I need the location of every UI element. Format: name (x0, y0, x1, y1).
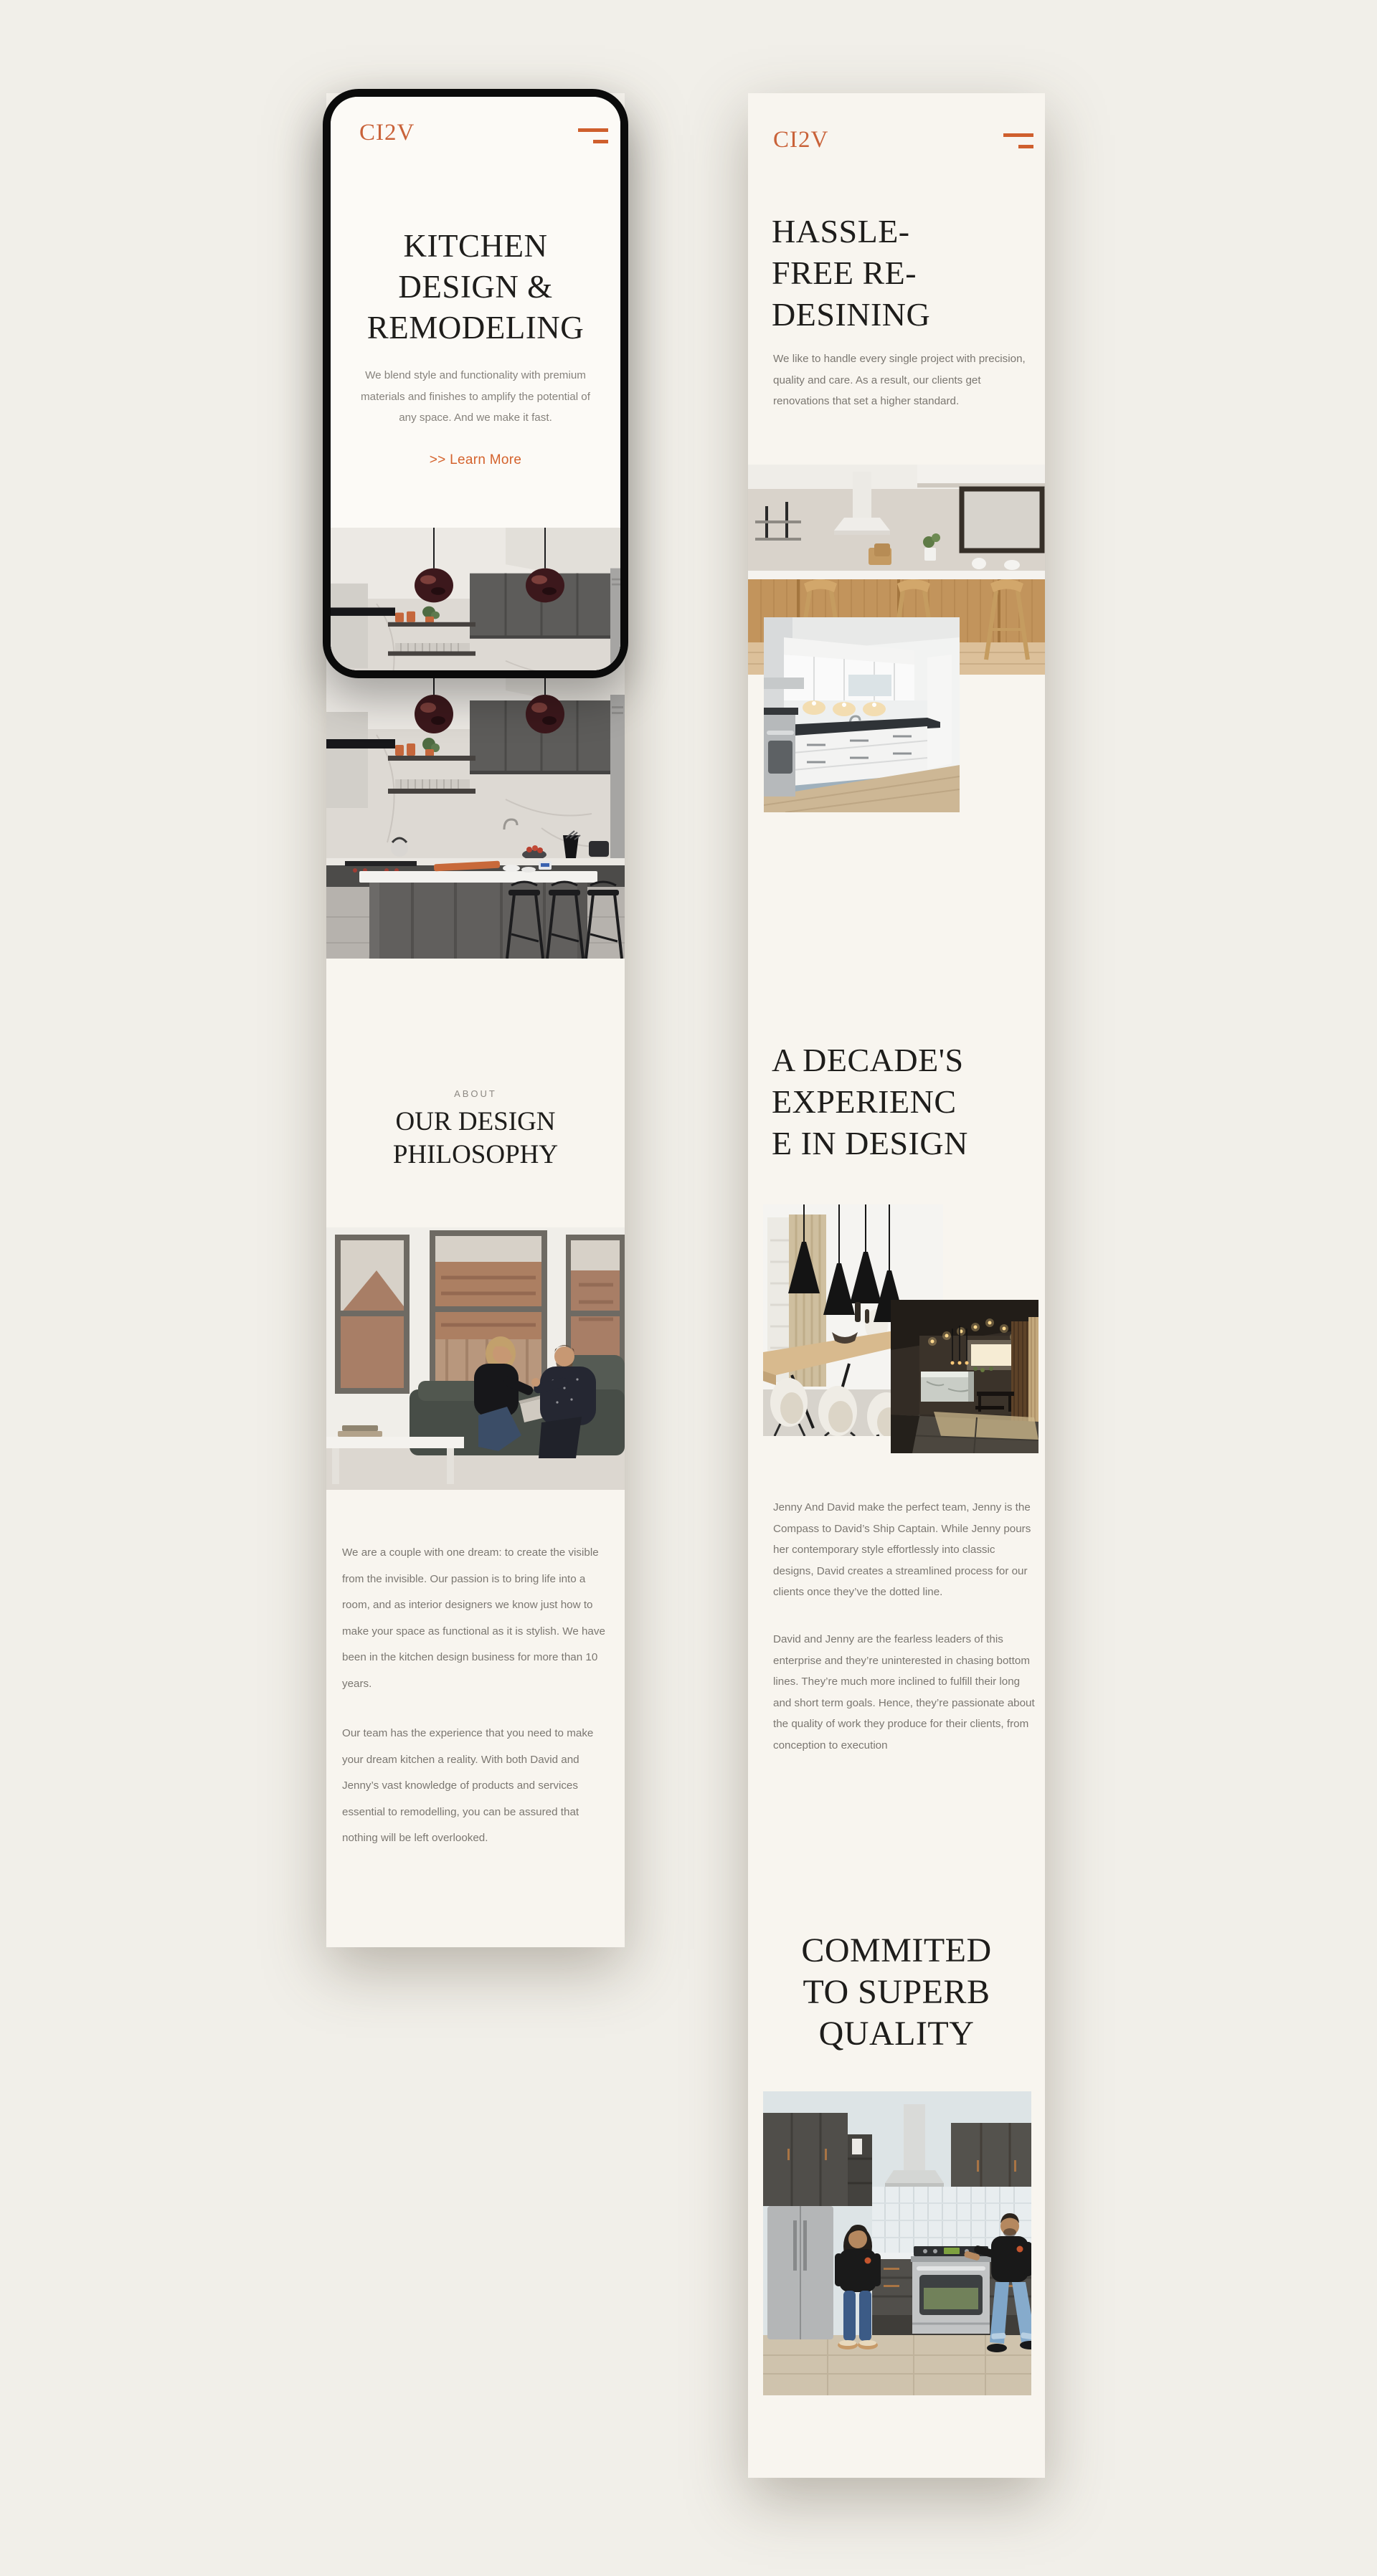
about-paragraph-2: Our team has the experience that you nee… (342, 1721, 606, 1852)
about-heading-line: PHILOSOPHY (326, 1139, 625, 1171)
section-heading-experience: A DECADE'S EXPERIENC E IN DESIGN (772, 1040, 968, 1164)
hero-heading: KITCHEN DESIGN & REMODELING (331, 226, 620, 348)
heading-line: QUALITY (748, 2013, 1045, 2055)
menu-line-bottom (593, 140, 608, 143)
hero-heading-line: DESIGN & (331, 267, 620, 308)
heading-line: DESINING (772, 294, 930, 336)
menu-icon[interactable] (1003, 133, 1033, 148)
learn-more-link[interactable]: >> Learn More (331, 452, 620, 468)
hero-heading-line: KITCHEN (331, 226, 620, 267)
dark-kitchen-image (326, 649, 625, 959)
hero-kitchen-image (331, 528, 620, 670)
hero-paragraph: We blend style and functionality with pr… (354, 365, 597, 429)
about-label: ABOUT (326, 1088, 625, 1099)
white-kitchen-image (764, 617, 960, 812)
couple-on-couch-image (326, 1227, 625, 1490)
redesign-paragraph: We like to handle every single project w… (773, 348, 1037, 412)
heading-line: HASSLE- (772, 211, 930, 252)
heading-line: E IN DESIGN (772, 1123, 968, 1164)
phone-screen: CI2V KITCHEN DESIGN & REMODELING We blen… (331, 97, 620, 670)
owners-in-kitchen-image (763, 2091, 1031, 2395)
about-paragraph-1: We are a couple with one dream: to creat… (342, 1540, 606, 1697)
about-heading-line: OUR DESIGN (326, 1106, 625, 1139)
hero-heading-line: REMODELING (331, 308, 620, 348)
menu-line-top (1003, 133, 1033, 137)
section-heading-quality: COMMITED TO SUPERB QUALITY (748, 1930, 1045, 2055)
design-canvas: ABOUT OUR DESIGN PHILOSOPHY (0, 0, 1377, 2576)
menu-icon[interactable] (578, 128, 608, 143)
heading-line: FREE RE- (772, 252, 930, 294)
heading-line: TO SUPERB (748, 1972, 1045, 2013)
brand-logo[interactable]: CI2V (359, 120, 415, 146)
mobile-page-services: CI2V HASSLE- FREE RE- DESINING We like t… (748, 93, 1045, 2478)
section-heading-redesign: HASSLE- FREE RE- DESINING (772, 211, 930, 336)
heading-line: COMMITED (748, 1930, 1045, 1972)
team-paragraph-1: Jenny And David make the perfect team, J… (773, 1497, 1037, 1603)
heading-line: EXPERIENC (772, 1081, 968, 1123)
dark-showroom-image (891, 1300, 1038, 1453)
menu-line-top (578, 128, 608, 132)
about-heading: OUR DESIGN PHILOSOPHY (326, 1106, 625, 1171)
brand-logo[interactable]: CI2V (773, 127, 828, 153)
heading-line: A DECADE'S (772, 1040, 968, 1081)
menu-line-bottom (1018, 145, 1033, 148)
team-paragraph-2: David and Jenny are the fearless leaders… (773, 1629, 1037, 1757)
phone-mockup: CI2V KITCHEN DESIGN & REMODELING We blen… (323, 89, 628, 678)
